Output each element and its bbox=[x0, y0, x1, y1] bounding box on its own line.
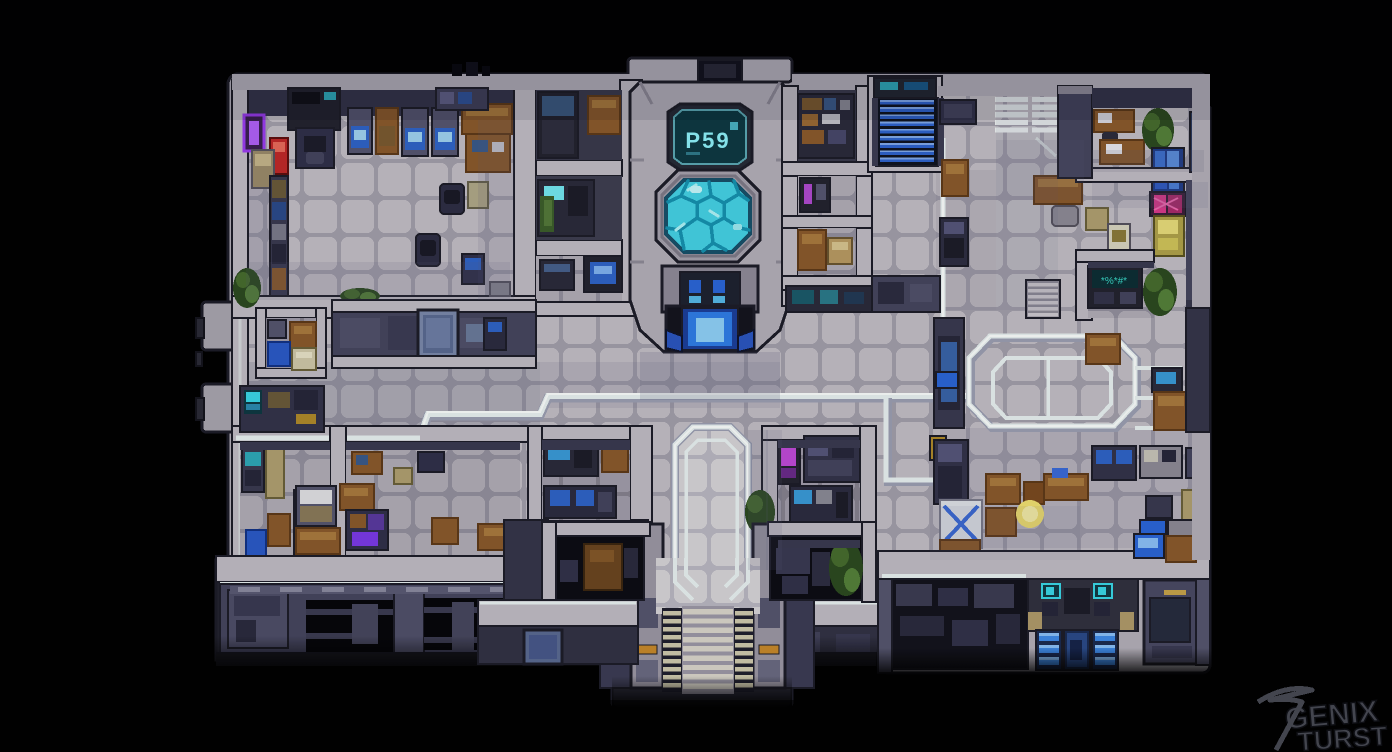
svg-text:TURST: TURST bbox=[1296, 721, 1388, 752]
